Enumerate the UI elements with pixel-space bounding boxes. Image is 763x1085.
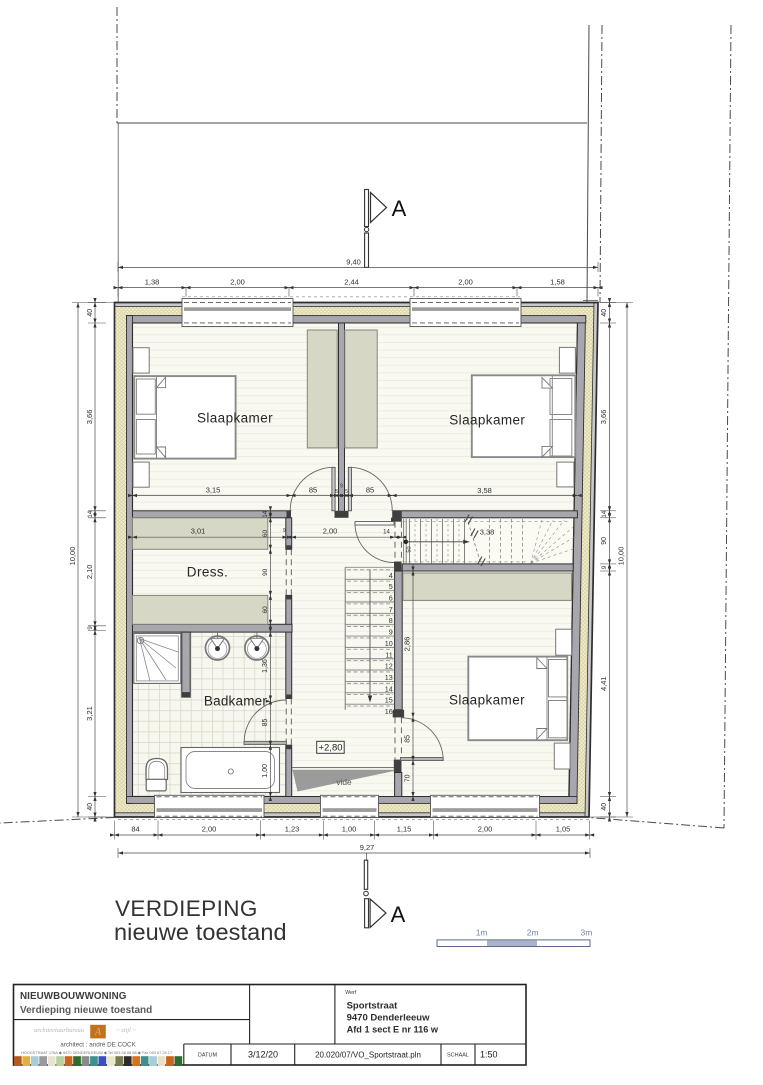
svg-text:9: 9 [340, 484, 343, 490]
svg-text:14: 14 [602, 510, 608, 517]
svg-text:A: A [391, 902, 406, 927]
svg-text:3/12/20: 3/12/20 [248, 1050, 278, 1060]
svg-text:3,01: 3,01 [191, 527, 206, 536]
svg-text:A: A [94, 1027, 102, 1038]
svg-text:Dress.: Dress. [187, 565, 228, 580]
svg-text:85: 85 [404, 735, 411, 743]
svg-text:2,00: 2,00 [230, 277, 245, 286]
svg-text:VERDIEPING: VERDIEPING [115, 896, 258, 921]
svg-text:3,21: 3,21 [85, 706, 94, 721]
svg-text:~ stijl ~: ~ stijl ~ [116, 1027, 137, 1034]
svg-text:60: 60 [262, 606, 269, 614]
svg-text:3,38: 3,38 [480, 528, 495, 537]
svg-text:40: 40 [601, 309, 608, 317]
svg-text:20.020/07/VO_Sportstraat.pln: 20.020/07/VO_Sportstraat.pln [315, 1051, 421, 1060]
svg-text:9: 9 [389, 628, 393, 637]
svg-text:10,00: 10,00 [617, 547, 626, 566]
svg-text:vide: vide [336, 777, 352, 787]
svg-text:9: 9 [283, 528, 286, 534]
svg-text:5: 5 [345, 489, 348, 495]
svg-text:2,00: 2,00 [458, 277, 473, 286]
svg-text:Badkamer: Badkamer [204, 694, 267, 709]
svg-text:3m: 3m [580, 928, 592, 938]
svg-text:14: 14 [385, 684, 393, 693]
svg-text:3,15: 3,15 [206, 485, 221, 494]
svg-text:85: 85 [366, 485, 374, 494]
svg-text:4: 4 [389, 571, 393, 580]
svg-text:9470 Denderleeuw: 9470 Denderleeuw [347, 1013, 431, 1024]
svg-text:90: 90 [262, 568, 269, 576]
svg-text:14: 14 [383, 530, 390, 536]
svg-text:10,00: 10,00 [68, 547, 77, 566]
svg-text:SCHAAL: SCHAAL [447, 1053, 469, 1059]
svg-text:nieuwe toestand: nieuwe toestand [114, 919, 287, 945]
svg-text:2,86: 2,86 [402, 637, 411, 652]
svg-text:84: 84 [131, 825, 139, 834]
svg-text:2,00: 2,00 [478, 825, 493, 834]
svg-text:DATUM: DATUM [198, 1053, 218, 1059]
svg-text:Sportstraat: Sportstraat [347, 1001, 399, 1012]
svg-text:6: 6 [389, 594, 393, 603]
svg-text:3,66: 3,66 [599, 410, 608, 425]
svg-text:90: 90 [601, 537, 608, 545]
svg-text:architect : andré DE COCK: architect : andré DE COCK [60, 1041, 136, 1048]
svg-text:Werf: Werf [345, 990, 356, 996]
svg-text:3,66: 3,66 [85, 410, 94, 425]
svg-text:1:50: 1:50 [480, 1050, 498, 1060]
svg-text:4,41: 4,41 [599, 676, 608, 691]
svg-text:+2,80: +2,80 [318, 743, 342, 754]
svg-text:5: 5 [389, 582, 393, 591]
svg-text:1,00: 1,00 [262, 764, 269, 778]
svg-text:Verdieping nieuwe toestand: Verdieping nieuwe toestand [20, 1005, 152, 1016]
svg-text:9,40: 9,40 [346, 258, 361, 267]
svg-text:10: 10 [385, 639, 393, 648]
svg-text:2,10: 2,10 [85, 564, 94, 579]
svg-text:40: 40 [87, 803, 94, 811]
svg-text:50: 50 [407, 546, 413, 552]
svg-text:16: 16 [385, 707, 393, 716]
svg-text:2,00: 2,00 [202, 825, 217, 834]
svg-text:5: 5 [335, 489, 338, 495]
svg-text:3,58: 3,58 [477, 486, 492, 495]
svg-text:11: 11 [385, 650, 392, 659]
svg-text:85: 85 [309, 485, 317, 494]
svg-text:1,15: 1,15 [397, 825, 412, 834]
svg-text:1,23: 1,23 [285, 825, 300, 834]
svg-text:1,05: 1,05 [556, 825, 571, 834]
svg-text:NIEUWBOUWWONING: NIEUWBOUWWONING [20, 991, 127, 1002]
svg-text:40: 40 [601, 803, 608, 811]
svg-text:14: 14 [88, 510, 94, 517]
svg-text:1,00: 1,00 [342, 825, 357, 834]
svg-text:70: 70 [404, 774, 411, 782]
svg-text:2,00: 2,00 [323, 527, 338, 536]
svg-text:15: 15 [385, 696, 393, 705]
svg-text:Slaapkamer: Slaapkamer [449, 693, 525, 708]
svg-text:60: 60 [262, 530, 269, 538]
svg-text:Slaapkamer: Slaapkamer [197, 411, 273, 426]
svg-text:1m: 1m [476, 928, 488, 938]
svg-text:2,44: 2,44 [344, 277, 359, 286]
svg-text:12: 12 [385, 662, 393, 671]
svg-text:2m: 2m [527, 928, 539, 938]
svg-text:14: 14 [263, 510, 269, 517]
svg-text:85: 85 [262, 719, 269, 727]
svg-text:Afd 1 sect E nr 116 w: Afd 1 sect E nr 116 w [347, 1025, 439, 1035]
svg-text:A: A [392, 196, 407, 221]
svg-text:1,58: 1,58 [550, 277, 565, 286]
svg-text:architectuurbureau: architectuurbureau [34, 1027, 85, 1034]
svg-text:1,38: 1,38 [145, 277, 160, 286]
svg-text:40: 40 [87, 309, 94, 317]
svg-text:9,27: 9,27 [360, 843, 375, 852]
svg-text:HOOGSTRAAT 176A ◆ 9470 D: HOOGSTRAAT 176A ◆ 9470 DENDERLEEUW ◆ Tel… [21, 1050, 172, 1055]
svg-text:7: 7 [389, 605, 393, 614]
svg-text:13: 13 [385, 673, 393, 682]
svg-text:Slaapkamer: Slaapkamer [449, 413, 525, 428]
svg-text:1,36: 1,36 [262, 659, 269, 673]
svg-text:8: 8 [389, 616, 393, 625]
